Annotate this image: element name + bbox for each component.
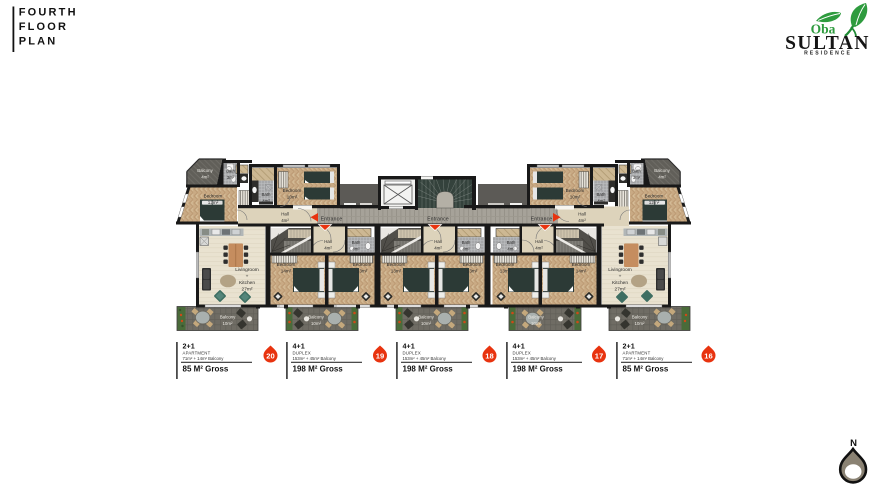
svg-text:71m² + 14m² Balcony: 71m² + 14m² Balcony xyxy=(183,356,225,361)
svg-text:4m²: 4m² xyxy=(201,175,209,180)
svg-text:153m² + 45m² Balcony: 153m² + 45m² Balcony xyxy=(513,356,557,361)
svg-text:4m²: 4m² xyxy=(352,247,360,252)
svg-text:Bedroom: Bedroom xyxy=(283,188,302,193)
svg-text:Bath: Bath xyxy=(226,169,235,174)
svg-text:10m²: 10m² xyxy=(531,321,542,326)
svg-text:Hall: Hall xyxy=(281,212,289,217)
svg-text:Livingroom: Livingroom xyxy=(608,267,631,273)
svg-text:10m²: 10m² xyxy=(634,321,645,326)
svg-text:4m²: 4m² xyxy=(462,247,470,252)
svg-text:4+1: 4+1 xyxy=(293,342,305,351)
svg-text:Livingroom: Livingroom xyxy=(235,267,258,273)
svg-text:Balcony: Balcony xyxy=(418,314,434,319)
svg-text:Bath: Bath xyxy=(632,169,641,174)
svg-text:RESIDENCE: RESIDENCE xyxy=(804,50,852,56)
svg-text:DUPLEX: DUPLEX xyxy=(403,351,421,356)
svg-text:198 M² Gross: 198 M² Gross xyxy=(403,365,454,374)
svg-text:FLOOR: FLOOR xyxy=(19,21,68,33)
svg-text:16: 16 xyxy=(704,352,712,361)
svg-text:Bedroom: Bedroom xyxy=(463,262,482,267)
svg-text:4m²: 4m² xyxy=(507,247,515,252)
svg-text:4+1: 4+1 xyxy=(403,342,415,351)
svg-text:2+1: 2+1 xyxy=(183,342,195,351)
svg-text:153m² + 45m² Balcony: 153m² + 45m² Balcony xyxy=(293,356,337,361)
svg-text:Bedroom: Bedroom xyxy=(204,194,223,199)
svg-text:4m²: 4m² xyxy=(597,199,605,204)
svg-text:71m² + 14m² Balcony: 71m² + 14m² Balcony xyxy=(623,356,665,361)
svg-text:4m²: 4m² xyxy=(262,199,270,204)
svg-text:Bath: Bath xyxy=(596,192,606,197)
svg-text:Bath: Bath xyxy=(462,240,471,245)
svg-text:Hall: Hall xyxy=(535,239,543,244)
svg-text:10m²: 10m² xyxy=(311,321,322,326)
svg-text:3m²: 3m² xyxy=(633,175,641,180)
svg-text:10m²: 10m² xyxy=(421,321,432,326)
svg-text:14m²: 14m² xyxy=(576,269,587,274)
svg-text:FOURTH: FOURTH xyxy=(19,6,78,18)
svg-text:4m²: 4m² xyxy=(281,218,289,223)
svg-text:2+1: 2+1 xyxy=(623,342,635,351)
svg-text:Kitchen: Kitchen xyxy=(612,280,628,286)
svg-text:Entrance: Entrance xyxy=(427,216,449,222)
svg-text:10m²: 10m² xyxy=(570,195,581,200)
svg-text:4+1: 4+1 xyxy=(513,342,525,351)
svg-text:Bedroom: Bedroom xyxy=(277,262,296,267)
svg-text:Entrance: Entrance xyxy=(531,216,553,222)
svg-text:12m²: 12m² xyxy=(208,200,219,205)
svg-text:13m²: 13m² xyxy=(467,269,478,274)
svg-text:153m² + 45m² Balcony: 153m² + 45m² Balcony xyxy=(403,356,447,361)
svg-text:18: 18 xyxy=(485,352,493,361)
svg-text:198 M² Gross: 198 M² Gross xyxy=(513,365,564,374)
svg-text:27m²: 27m² xyxy=(242,287,253,293)
svg-text:DUPLEX: DUPLEX xyxy=(293,351,311,356)
svg-text:DUPLEX: DUPLEX xyxy=(513,351,531,356)
svg-text:27m²: 27m² xyxy=(615,287,626,293)
svg-text:Hall: Hall xyxy=(578,212,586,217)
svg-text:85 M² Gross: 85 M² Gross xyxy=(623,365,669,374)
svg-text:Bedroom: Bedroom xyxy=(645,194,664,199)
svg-text:Balcony: Balcony xyxy=(197,168,213,173)
svg-text:+: + xyxy=(619,275,622,280)
svg-text:Balcony: Balcony xyxy=(632,314,648,319)
svg-text:Bedroom: Bedroom xyxy=(566,188,585,193)
svg-text:13m²: 13m² xyxy=(391,269,402,274)
svg-text:Entrance: Entrance xyxy=(321,216,343,222)
svg-text:4m²: 4m² xyxy=(578,218,586,223)
svg-text:Hall: Hall xyxy=(434,239,442,244)
svg-text:198 M² Gross: 198 M² Gross xyxy=(293,365,344,374)
svg-text:APARTMENT: APARTMENT xyxy=(183,351,211,356)
svg-text:4m²: 4m² xyxy=(535,246,543,251)
svg-text:N: N xyxy=(850,438,857,449)
svg-text:Bedroom: Bedroom xyxy=(496,262,515,267)
svg-text:APARTMENT: APARTMENT xyxy=(623,351,651,356)
svg-text:3m²: 3m² xyxy=(227,175,235,180)
svg-text:4m²: 4m² xyxy=(434,246,442,251)
svg-text:Bedroom: Bedroom xyxy=(387,262,406,267)
svg-text:4m²: 4m² xyxy=(324,246,332,251)
svg-text:13m²: 13m² xyxy=(500,269,511,274)
svg-text:Bath: Bath xyxy=(507,240,516,245)
svg-text:Balcony: Balcony xyxy=(308,314,324,319)
svg-text:PLAN: PLAN xyxy=(19,36,58,48)
svg-text:17: 17 xyxy=(595,352,603,361)
svg-text:Balcony: Balcony xyxy=(654,168,670,173)
svg-text:Bedroom: Bedroom xyxy=(572,262,591,267)
svg-text:Kitchen: Kitchen xyxy=(239,280,255,286)
svg-text:12m²: 12m² xyxy=(649,200,660,205)
svg-text:Hall: Hall xyxy=(324,239,332,244)
svg-text:13m²: 13m² xyxy=(357,269,368,274)
svg-text:14m²: 14m² xyxy=(281,269,292,274)
svg-text:Bath: Bath xyxy=(261,192,271,197)
svg-text:Balcony: Balcony xyxy=(528,314,544,319)
svg-text:Bedroom: Bedroom xyxy=(353,262,372,267)
svg-text:20: 20 xyxy=(266,352,274,361)
svg-text:10m²: 10m² xyxy=(287,195,298,200)
svg-text:+: + xyxy=(246,275,249,280)
svg-text:19: 19 xyxy=(376,352,384,361)
svg-text:85 M² Gross: 85 M² Gross xyxy=(183,365,229,374)
svg-text:10m²: 10m² xyxy=(222,321,233,326)
svg-text:Balcony: Balcony xyxy=(220,314,236,319)
svg-text:4m²: 4m² xyxy=(658,175,666,180)
svg-text:Bath: Bath xyxy=(352,240,361,245)
